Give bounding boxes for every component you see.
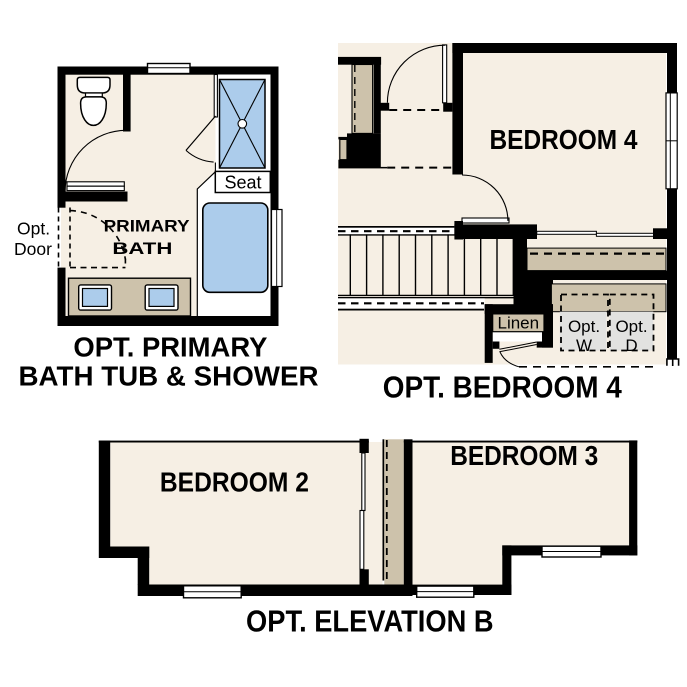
svg-text:BEDROOM 3: BEDROOM 3	[450, 440, 598, 471]
svg-text:Seat: Seat	[224, 173, 261, 193]
svg-text:BEDROOM 2: BEDROOM 2	[160, 466, 309, 497]
svg-text:D: D	[625, 336, 637, 355]
svg-text:BEDROOM 4: BEDROOM 4	[490, 124, 638, 155]
svg-text:Door: Door	[14, 239, 52, 259]
svg-text:Opt.: Opt.	[568, 317, 600, 336]
svg-text:PRIMARY: PRIMARY	[104, 218, 190, 236]
svg-text:Linen: Linen	[497, 314, 539, 333]
svg-text:OPT. PRIMARY: OPT. PRIMARY	[73, 331, 267, 362]
svg-text:W: W	[576, 336, 592, 355]
svg-text:Opt.: Opt.	[17, 219, 50, 239]
svg-text:BATH TUB & SHOWER: BATH TUB & SHOWER	[19, 360, 319, 391]
svg-text:BATH: BATH	[112, 240, 172, 258]
svg-text:OPT. ELEVATION B: OPT. ELEVATION B	[246, 604, 494, 639]
svg-text:OPT. BEDROOM 4: OPT. BEDROOM 4	[383, 369, 623, 404]
svg-text:Opt.: Opt.	[615, 317, 647, 336]
